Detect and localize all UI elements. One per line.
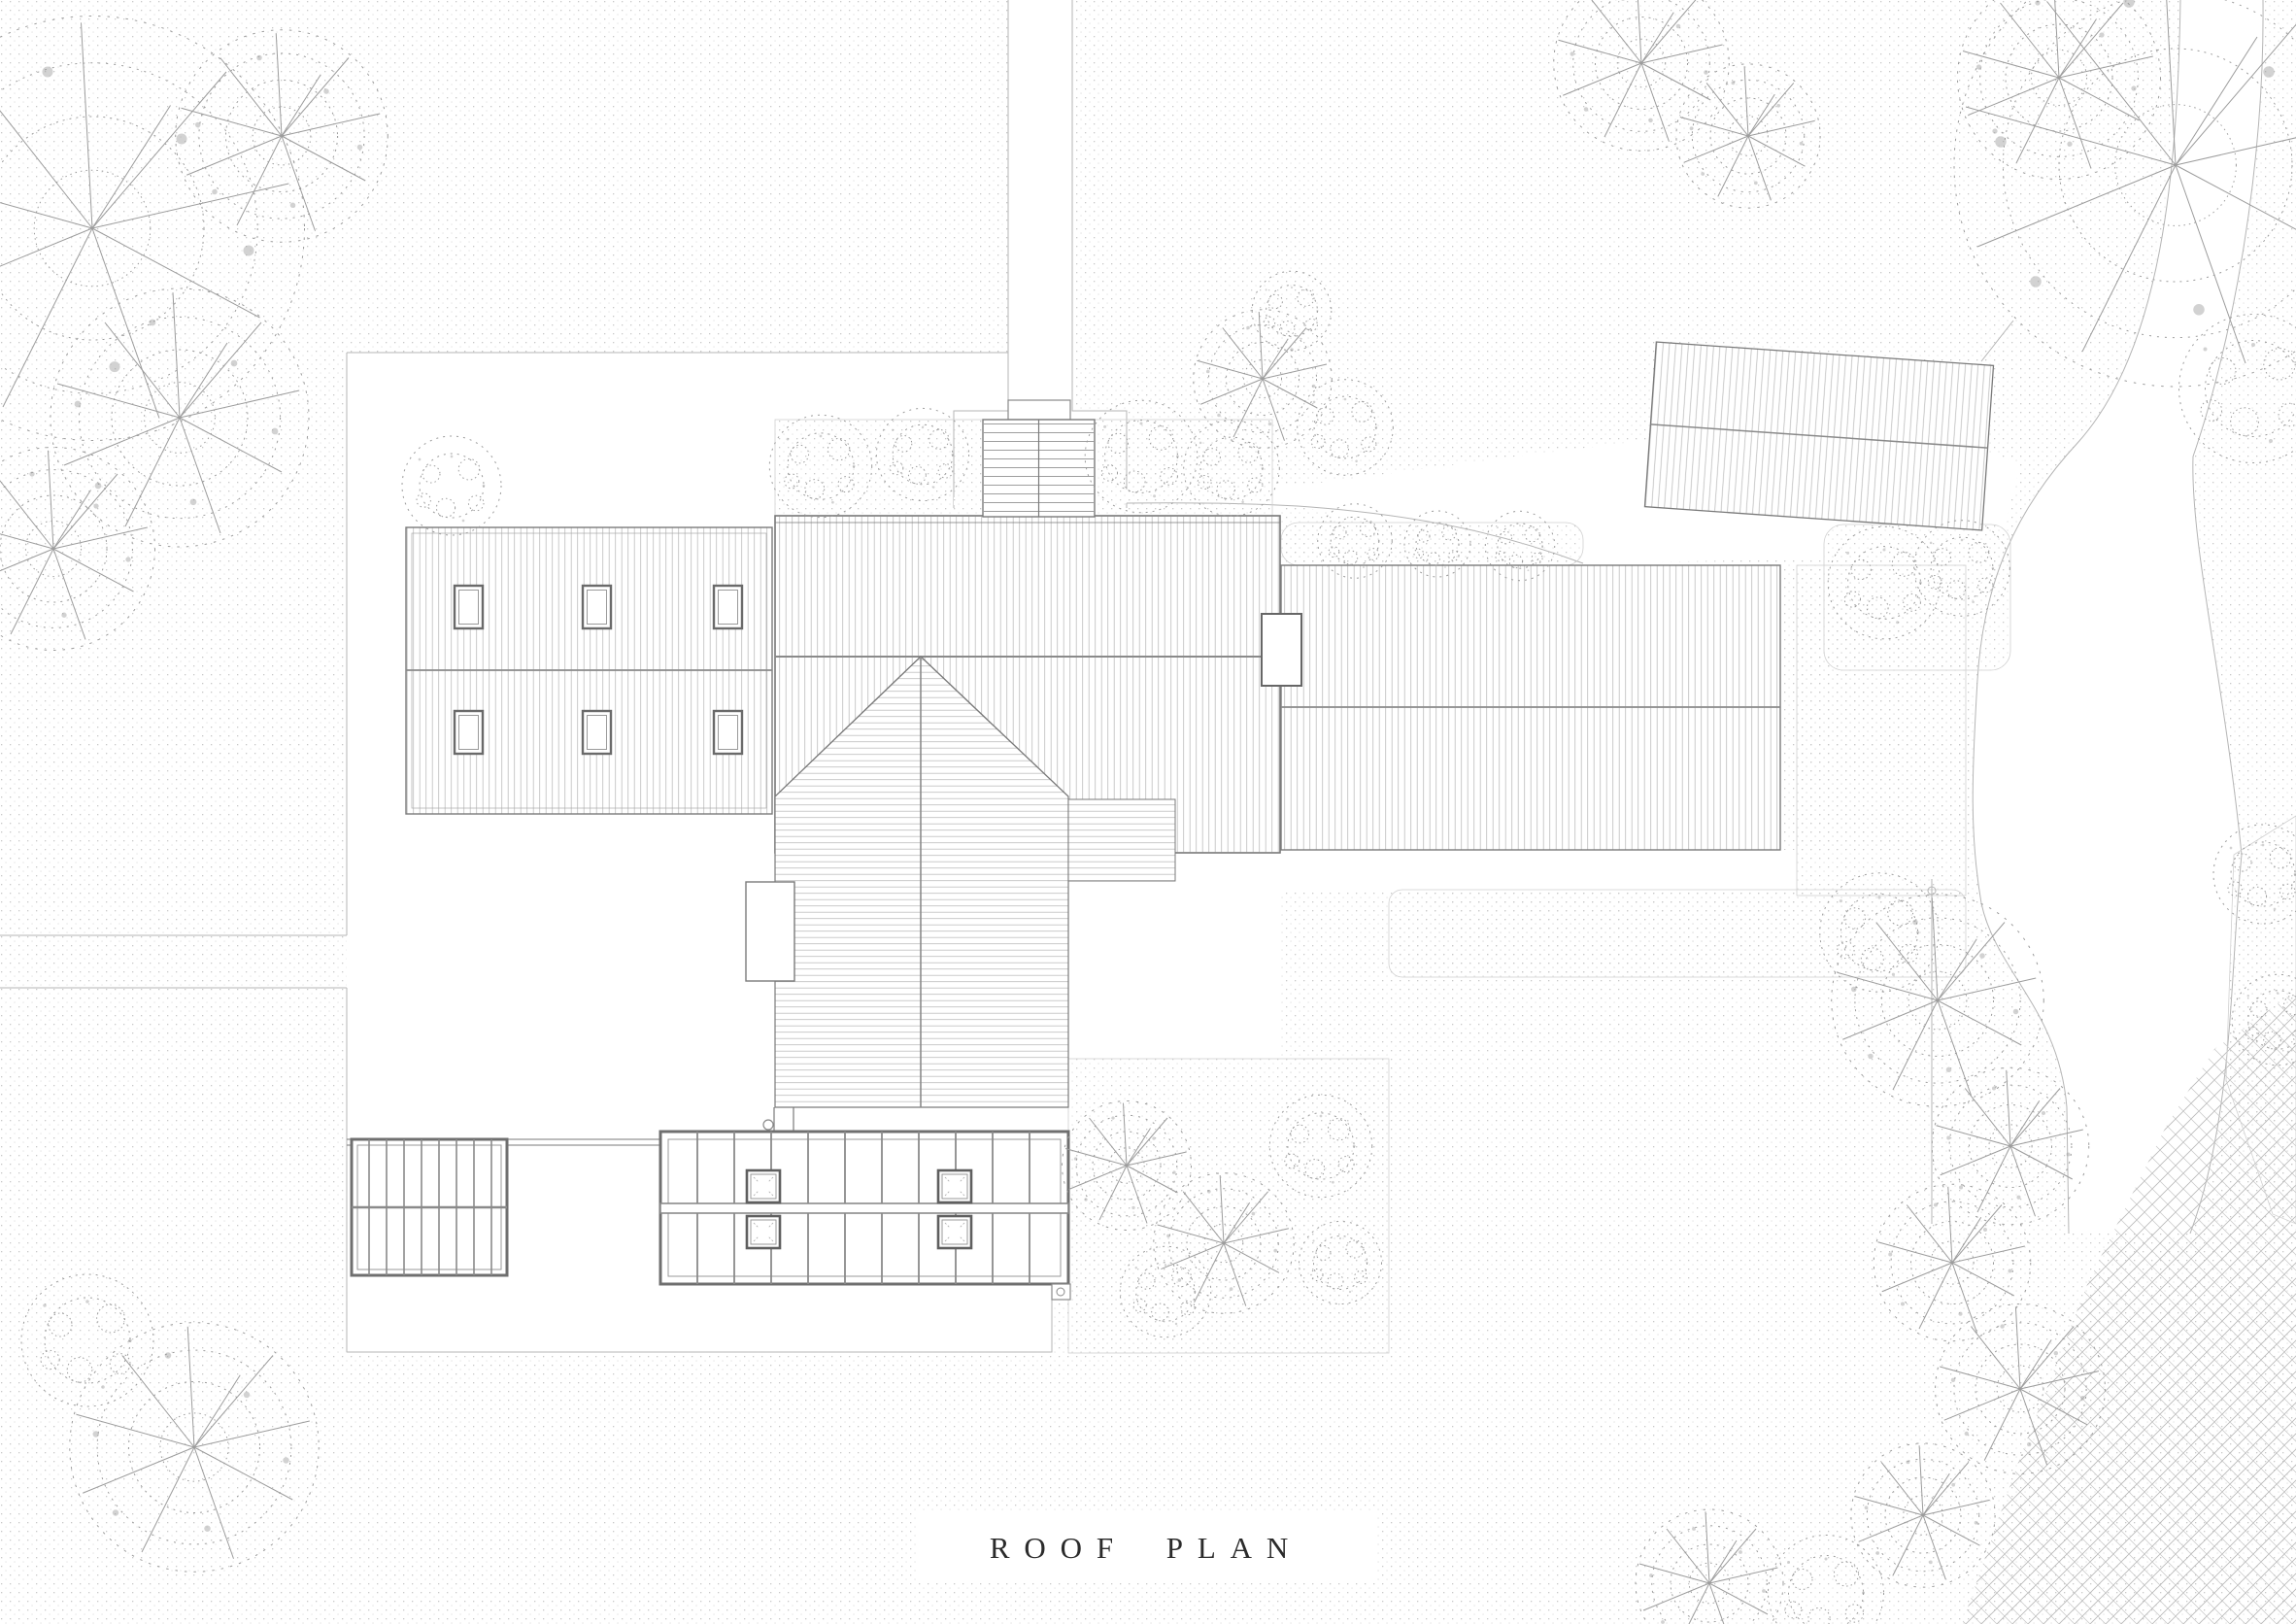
rooflight	[583, 586, 611, 628]
roof-box	[746, 882, 794, 981]
left-wing-roof	[406, 527, 772, 814]
rooflight	[455, 586, 483, 628]
drawing-sheet: ROOF PLAN	[0, 0, 2296, 1624]
terrace-bed	[1389, 890, 1966, 977]
right-wing-roof	[1262, 565, 1780, 850]
title-block: ROOF PLAN	[916, 1513, 1376, 1583]
roof-plan-label: ROOF PLAN	[990, 1531, 1302, 1565]
rooflight	[714, 586, 742, 628]
site-plan-svg: ROOF PLAN	[0, 0, 2296, 1624]
conservatory-rooflight	[938, 1170, 971, 1202]
conservatory-roof	[660, 1120, 1070, 1300]
rooflight	[583, 711, 611, 754]
conservatory-rooflight	[747, 1170, 780, 1202]
pergola-roof	[352, 1139, 507, 1275]
conservatory-rooflight	[938, 1216, 971, 1248]
garden-bed	[1068, 1059, 1389, 1353]
rooflight	[455, 711, 483, 754]
rooflight	[714, 711, 742, 754]
conservatory-rooflight	[747, 1216, 780, 1248]
rooflight-box	[1262, 614, 1301, 686]
garage-roof	[1644, 342, 1993, 530]
